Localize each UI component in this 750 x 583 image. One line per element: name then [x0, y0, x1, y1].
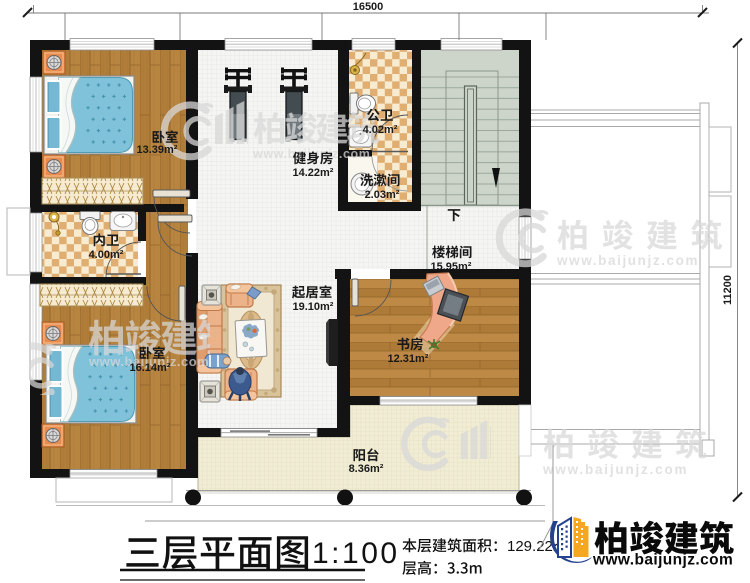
svg-text:16.14m²: 16.14m² [130, 362, 171, 374]
svg-text:4.02m²: 4.02m² [363, 124, 398, 136]
svg-text:14.22m²: 14.22m² [293, 167, 334, 179]
svg-text:11200: 11200 [722, 275, 734, 305]
svg-text:16500: 16500 [353, 1, 384, 13]
svg-text:13.39m²: 13.39m² [137, 144, 178, 156]
svg-text:2.03m²: 2.03m² [365, 189, 400, 201]
svg-text:1:100: 1:100 [312, 537, 400, 570]
svg-text:19.10m²: 19.10m² [293, 301, 334, 313]
svg-text:8.36m²: 8.36m² [349, 463, 384, 475]
svg-text:4.00m²: 4.00m² [89, 249, 124, 261]
svg-text:129.22: 129.22 [507, 538, 553, 555]
svg-text:15.95m²: 15.95m² [431, 261, 472, 273]
svg-text:www.baijunjz.com: www.baijunjz.com [592, 552, 733, 569]
svg-text:www.baijunjz.com: www.baijunjz.com [556, 253, 699, 268]
svg-text:12.31m²: 12.31m² [388, 353, 429, 365]
svg-text:www.baijunjz.com: www.baijunjz.com [542, 462, 688, 477]
